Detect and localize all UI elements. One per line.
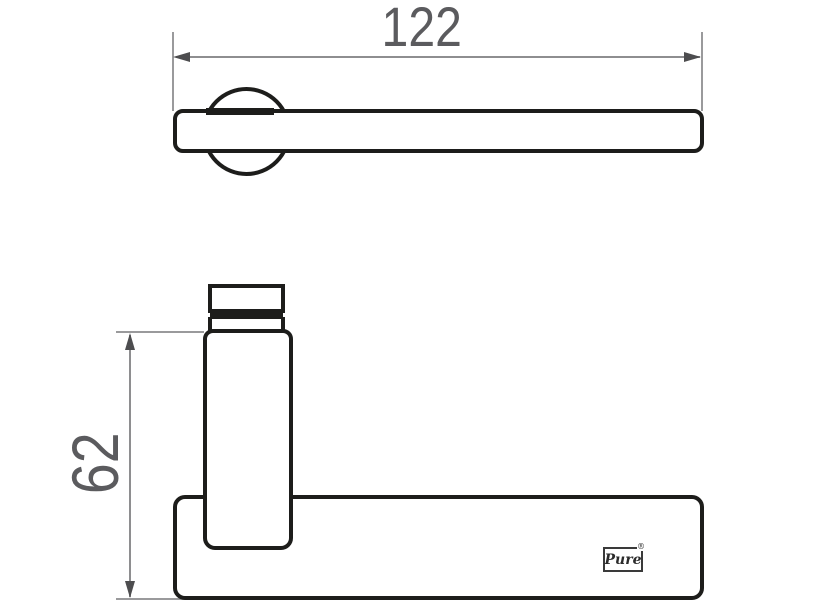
arrow-right-icon	[684, 52, 701, 62]
arrow-left-icon	[173, 52, 190, 62]
lever-bar-top-view	[173, 109, 704, 153]
width-dimension-label: 122	[322, 2, 522, 50]
collar-divider-line	[210, 313, 283, 319]
neck-edge-line	[206, 108, 274, 115]
height-extension-line-bottom	[116, 598, 186, 600]
registered-trademark-icon: ®	[637, 543, 645, 551]
pure-logo-text: Pure	[605, 552, 642, 568]
arrow-down-icon	[125, 581, 135, 598]
pure-logo: Pure ®	[603, 547, 643, 572]
height-dimension-label: 62	[64, 358, 126, 568]
height-dimension-value: 62	[57, 432, 133, 494]
arrow-up-icon	[125, 333, 135, 350]
handle-neck	[203, 329, 293, 550]
width-extension-line-left	[172, 32, 174, 111]
technical-drawing: 122 62 Pure ®	[0, 0, 818, 613]
width-dimension-value: 122	[382, 0, 462, 59]
spindle-cap	[208, 284, 285, 313]
width-extension-line-right	[701, 32, 703, 111]
